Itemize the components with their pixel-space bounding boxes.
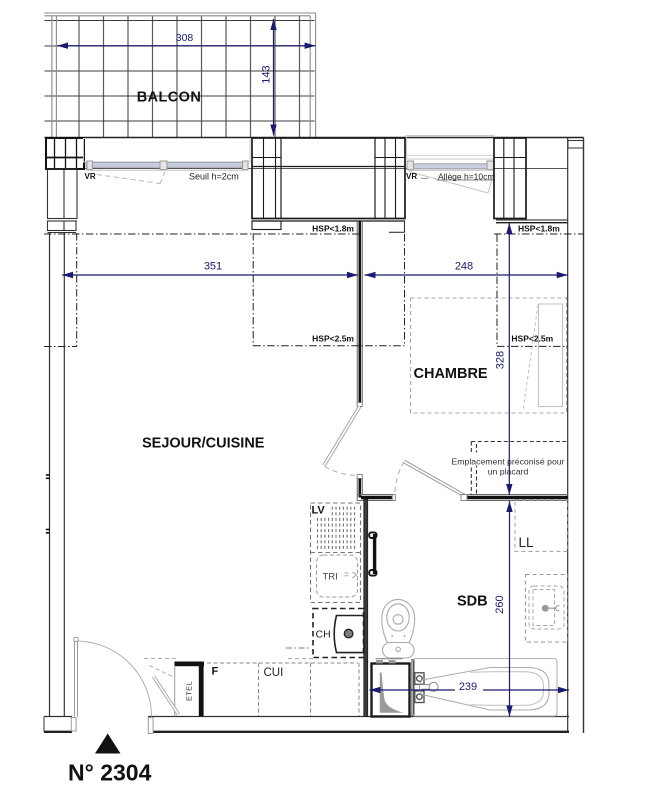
svg-text:143: 143 xyxy=(261,65,273,83)
svg-text:VR: VR xyxy=(406,172,417,181)
svg-text:239: 239 xyxy=(459,681,477,693)
svg-text:328: 328 xyxy=(495,351,507,369)
svg-text:HSP<1.8m: HSP<1.8m xyxy=(518,224,560,234)
svg-text:ETEL: ETEL xyxy=(185,681,194,701)
svg-text:BALCON: BALCON xyxy=(137,90,201,106)
svg-text:Allège h=10cm: Allège h=10cm xyxy=(438,172,494,182)
svg-text:N° 2304: N° 2304 xyxy=(68,760,152,786)
svg-text:CH: CH xyxy=(316,629,331,641)
svg-text:SEJOUR/CUISINE: SEJOUR/CUISINE xyxy=(142,436,265,452)
svg-text:Emplacement préconisé pour: Emplacement préconisé pour xyxy=(452,457,565,467)
svg-text:un placard: un placard xyxy=(488,467,529,477)
svg-text:VR: VR xyxy=(85,172,96,181)
svg-text:SDB: SDB xyxy=(457,594,488,610)
svg-text:260: 260 xyxy=(494,595,506,613)
svg-text:CHAMBRE: CHAMBRE xyxy=(414,366,488,382)
svg-text:308: 308 xyxy=(176,32,194,44)
svg-text:HSP<2.5m: HSP<2.5m xyxy=(312,334,354,344)
svg-text:248: 248 xyxy=(455,261,473,273)
svg-text:TRI: TRI xyxy=(323,572,338,583)
svg-text:LL: LL xyxy=(519,535,535,550)
svg-text:HSP<1.8m: HSP<1.8m xyxy=(312,224,354,234)
svg-text:CUI: CUI xyxy=(264,667,284,679)
svg-text:LV: LV xyxy=(312,505,326,517)
svg-text:Seuil h=2cm: Seuil h=2cm xyxy=(189,172,239,182)
svg-text:F: F xyxy=(212,666,219,678)
svg-text:351: 351 xyxy=(204,261,222,273)
svg-text:HSP<2.5m: HSP<2.5m xyxy=(511,334,553,344)
